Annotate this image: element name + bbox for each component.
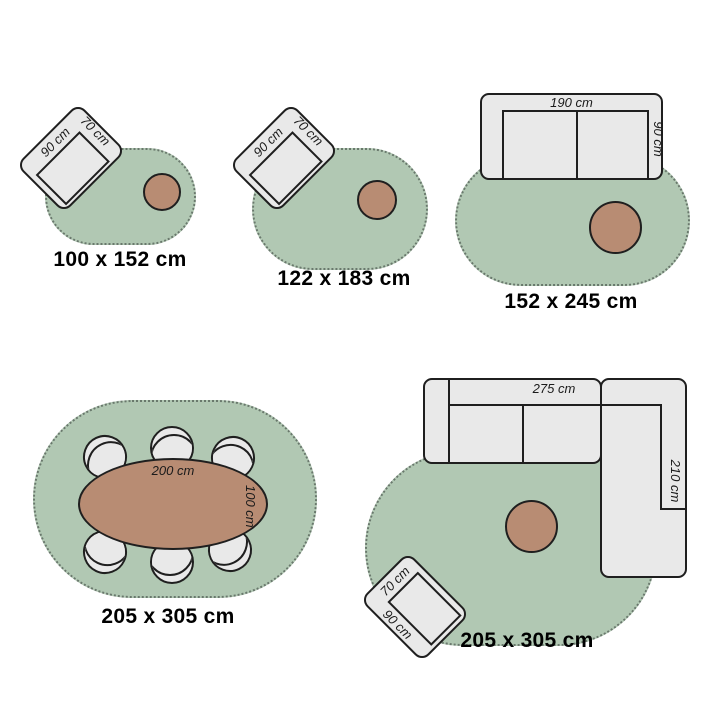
sofa-width-label: 275 cm: [448, 382, 660, 396]
sofa-depth-label: 210 cm: [668, 459, 682, 503]
chaise-backrest-line: [660, 404, 662, 510]
chaise-backrest-end-line: [660, 508, 687, 510]
corner-sofa: 275 cm 210 cm: [423, 378, 687, 578]
sofa-backrest-line: [448, 404, 662, 406]
scene-rug-205x305-corner: 275 cm 210 cm 70 cm 90 cm 205 x 305 cm: [0, 0, 720, 720]
rug-size-diagram: 90 cm 70 cm 100 x 152 cm 90 cm 70 cm 122…: [0, 0, 720, 720]
sofa-cushion-divider: [522, 404, 524, 464]
size-label: 205 x 305 cm: [427, 629, 627, 653]
